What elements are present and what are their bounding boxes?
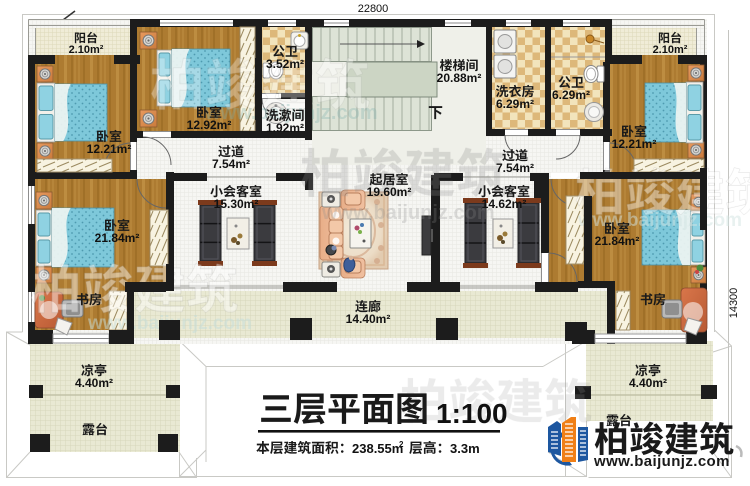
svg-text:3.3m: 3.3m [450,441,480,456]
svg-text:238.55m: 238.55m [352,441,403,456]
svg-text:14.62m²: 14.62m² [482,197,527,211]
svg-text:www.baijunjz.com: www.baijunjz.com [577,210,742,231]
svg-text:7.54m²: 7.54m² [496,161,534,175]
svg-text:20.88m²: 20.88m² [437,71,482,85]
svg-text:6.29m²: 6.29m² [552,88,590,102]
svg-text:1:100: 1:100 [436,398,508,429]
svg-text:2.10m²: 2.10m² [69,44,104,56]
svg-text:7.54m²: 7.54m² [212,157,250,171]
svg-text:2.10m²: 2.10m² [653,44,688,56]
svg-text:21.84m²: 21.84m² [95,231,140,245]
svg-text:1.92m²: 1.92m² [266,121,304,135]
svg-text:19.60m²: 19.60m² [367,185,412,199]
svg-text:2: 2 [399,440,404,449]
svg-text:www.baijunjz.com: www.baijunjz.com [321,202,495,224]
svg-text:6.29m²: 6.29m² [496,97,534,111]
svg-text:14300: 14300 [728,288,740,319]
svg-text:12.21m²: 12.21m² [87,142,132,156]
svg-text:15.30m²: 15.30m² [214,197,259,211]
svg-text:22800: 22800 [358,3,389,15]
svg-text:14.40m²: 14.40m² [346,312,391,326]
svg-text:21.84m²: 21.84m² [595,234,640,248]
svg-text:3.52m²: 3.52m² [266,57,304,71]
svg-text:12.92m²: 12.92m² [187,118,232,132]
svg-text:4.40m²: 4.40m² [629,376,667,390]
svg-text:www.baijunjz.com: www.baijunjz.com [593,453,730,470]
svg-text:4.40m²: 4.40m² [75,376,113,390]
svg-text:12.21m²: 12.21m² [612,137,657,151]
